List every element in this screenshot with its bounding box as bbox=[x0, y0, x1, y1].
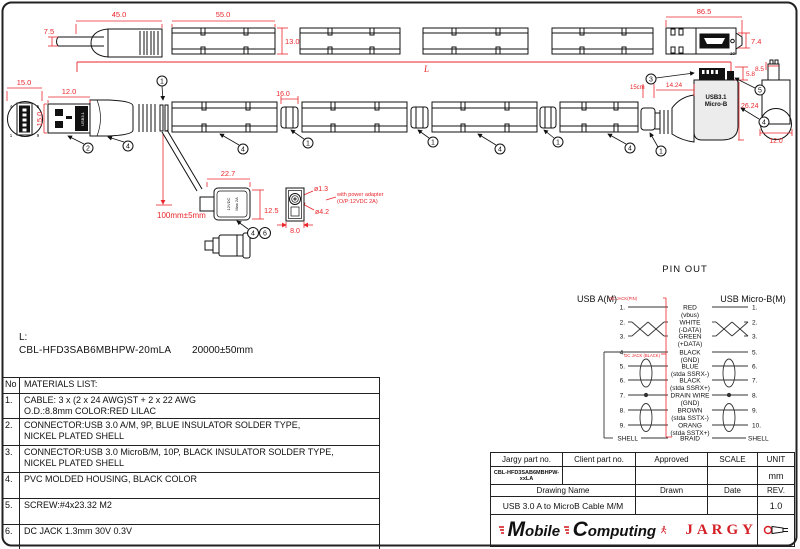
dim-7-4: 7.4 bbox=[751, 37, 761, 46]
pin10-label: 10 bbox=[730, 51, 736, 56]
dc-housing-label1: 12VDC bbox=[226, 197, 231, 210]
pin-r-8: 9. bbox=[752, 408, 758, 415]
callout-4e: 4 bbox=[762, 120, 766, 127]
running-man-icon bbox=[660, 520, 667, 540]
brand-word-mobile: Mobile bbox=[508, 518, 561, 542]
material-no-2: 2. bbox=[3, 419, 20, 445]
dim-26-24: 26.24 bbox=[741, 103, 759, 110]
dim-1-3: ø1.3 bbox=[314, 186, 328, 193]
title-block-logo-row: Mobile Computing JARGY bbox=[491, 515, 794, 545]
dim-15-front: 15.0 bbox=[17, 78, 32, 87]
callout-4c: 4 bbox=[498, 147, 502, 154]
material-desc-2a: CONNECTOR:USB 3.0 A/M, 9P, BLUE INSULATO… bbox=[24, 420, 379, 431]
wire-4: BLACK bbox=[679, 350, 701, 357]
connector-icon bbox=[763, 523, 789, 537]
jargy-part-label: Jargy part no. bbox=[491, 453, 563, 466]
dim-12-right: 12.0 bbox=[769, 138, 783, 145]
client-part-value bbox=[563, 467, 636, 484]
power-note-1: with power adapter bbox=[336, 192, 384, 198]
callout-4a: 4 bbox=[126, 144, 130, 151]
material-desc-1a: CABLE: 3 x (2 x 24 AWG)ST + 2 x 22 AWG bbox=[24, 395, 379, 406]
material-row-6: 6. DC JACK 1.3mm 30V 0.3V bbox=[3, 524, 379, 549]
dim-45: 45.0 bbox=[112, 10, 127, 19]
callout-1b: 1 bbox=[306, 141, 310, 148]
cable-part-number: CBL-HFD3SAB6MBHPW-20mLA bbox=[19, 345, 171, 356]
callout-3: 3 bbox=[649, 77, 653, 84]
wire-3-sub: (+DATA) bbox=[678, 341, 703, 348]
wire-1-sub: (vbus) bbox=[681, 312, 699, 319]
dc-jack-black-label: DC JACK (BLACK) bbox=[624, 353, 660, 358]
drawn-value bbox=[636, 497, 708, 514]
power-note-2: (O/P:12VDC 2A) bbox=[337, 199, 378, 205]
title-block-header-row: Jargy part no. Client part no. Approved … bbox=[491, 453, 794, 467]
callout-1c: 1 bbox=[431, 140, 435, 147]
materials-header-row: No MATERIALS LIST: bbox=[3, 378, 379, 393]
speed-lines-icon bbox=[499, 523, 504, 537]
callout-4f: 4 bbox=[251, 231, 255, 238]
material-desc-4: PVC MOLDED HOUSING, BLACK COLOR bbox=[20, 473, 379, 498]
approved-value bbox=[636, 467, 708, 484]
dim-14-24: 14.24 bbox=[666, 82, 683, 89]
pin-r-5: 6. bbox=[752, 364, 758, 371]
dim-22-7: 22.7 bbox=[221, 169, 236, 178]
materials-list-table: No MATERIALS LIST: 1. CABLE: 3 x (2 x 24… bbox=[3, 377, 380, 549]
pin-r-9: 10. bbox=[752, 423, 761, 430]
material-row-1: 1. CABLE: 3 x (2 x 24 AWG)ST + 2 x 22 AW… bbox=[3, 393, 379, 418]
pin-l-8: 8. bbox=[620, 408, 626, 415]
connector-logo-cell bbox=[758, 515, 794, 545]
pin-l-6: 6. bbox=[620, 378, 626, 385]
wire-7-sub: (GND) bbox=[681, 400, 700, 407]
dim-100mm: 100mm±5mm bbox=[157, 211, 206, 220]
length-note-prefix: L: bbox=[19, 331, 253, 344]
pinout-title: PIN OUT bbox=[662, 264, 708, 275]
material-row-2: 2. CONNECTOR:USB 3.0 A/M, 9P, BLUE INSUL… bbox=[3, 418, 379, 445]
material-row-3: 3. CONNECTOR:USB 3.0 MicroB/M, 10P, BLAC… bbox=[3, 445, 379, 472]
dim-8-5: 8.5 bbox=[755, 66, 764, 73]
brand-word-computing: Computing bbox=[573, 518, 657, 542]
pin-l-9: 9. bbox=[620, 423, 626, 430]
dim-4-2: ø4.2 bbox=[315, 209, 329, 216]
material-desc-5: SCREW:#4x23.32 M2 bbox=[20, 499, 379, 524]
callout-5: 5 bbox=[758, 88, 762, 95]
drawing-name-label: Drawing Name bbox=[491, 485, 636, 496]
title-block-value-row2: USB 3.0 A to MicroB Cable M/M 1.0 bbox=[491, 497, 794, 515]
dim-L: L bbox=[423, 64, 429, 74]
wire-1: RED bbox=[683, 305, 697, 312]
callout-4d: 4 bbox=[628, 146, 632, 153]
drawn-label: Drawn bbox=[636, 485, 708, 496]
wire-5: BLUE bbox=[682, 364, 700, 371]
dim-13: 13.0 bbox=[285, 37, 300, 46]
wire-6: BLACK bbox=[679, 378, 701, 385]
materials-no-header: No bbox=[3, 378, 20, 393]
wire-6-sub: (stda SSRX+) bbox=[670, 385, 710, 392]
pin-r-3: 3. bbox=[752, 334, 758, 341]
pin-r-4: 5. bbox=[752, 350, 758, 357]
jargy-part-value: CBL-HFD3SAB6MBHPW-xxLA bbox=[491, 467, 563, 484]
pin-l-3: 3. bbox=[620, 334, 626, 341]
material-no-4: 4. bbox=[3, 473, 20, 498]
dim-12-side: 12.0 bbox=[62, 87, 77, 96]
dim-15cm: 15cm bbox=[630, 85, 645, 91]
title-block-label-row2: Drawing Name Drawn Date REV. bbox=[491, 485, 794, 497]
pin-r-shell: SHELL bbox=[748, 436, 769, 443]
scale-value bbox=[708, 467, 758, 484]
jargy-logo: JARGY bbox=[685, 522, 757, 539]
title-block-value-row: CBL-HFD3SAB6MBHPW-xxLA mm bbox=[491, 467, 794, 485]
microb-body-label2: Micro-B bbox=[705, 102, 728, 108]
material-desc-2b: NICKEL PLATED SHELL bbox=[24, 431, 379, 442]
pin-l-4: 4. bbox=[620, 350, 626, 357]
usb31-shell-label: USB3.1 bbox=[80, 111, 85, 126]
pin-l-5: 5. bbox=[620, 364, 626, 371]
dim-55: 55.0 bbox=[216, 10, 231, 19]
date-value bbox=[708, 497, 758, 514]
callout-6: 6 bbox=[263, 231, 267, 238]
wire-8: BROWN bbox=[678, 408, 703, 415]
materials-list-header: MATERIALS LIST: bbox=[20, 378, 379, 393]
wire-9: ORANG bbox=[678, 423, 702, 430]
dim-15-side: 15.0 bbox=[35, 112, 44, 127]
date-label: Date bbox=[708, 485, 758, 496]
dim-8: 8.0 bbox=[290, 228, 300, 235]
dc-housing-label2: Max 2A bbox=[234, 197, 239, 211]
drawing-name-value: USB 3.0 A to MicroB Cable M/M bbox=[491, 497, 636, 514]
callout-1e: 1 bbox=[659, 149, 663, 156]
brand-logos: Mobile Computing JARGY bbox=[491, 515, 758, 545]
wire-3: GREEN bbox=[678, 334, 701, 341]
rev-label: REV. bbox=[758, 485, 794, 496]
material-row-5: 5. SCREW:#4x23.32 M2 bbox=[3, 498, 379, 524]
microb-body-label1: USB3.1 bbox=[705, 95, 727, 101]
material-desc-1b: O.D.:8.8mm COLOR:RED LILAC bbox=[24, 406, 379, 417]
unit-label: UNIT bbox=[758, 453, 794, 466]
dim-7-5: 7.5 bbox=[44, 27, 54, 36]
pin-l-7: 7. bbox=[620, 393, 626, 400]
cable-length-tolerance: 20000±50mm bbox=[192, 345, 253, 356]
pinout-right-header: USB Micro-B(M) bbox=[720, 294, 786, 304]
callout-1d: 1 bbox=[556, 140, 560, 147]
material-desc-6: DC JACK 1.3mm 30V 0.3V bbox=[20, 525, 379, 549]
material-no-6: 6. bbox=[3, 525, 20, 549]
pin-r-7: 8. bbox=[752, 393, 758, 400]
pin-r-1: 1. bbox=[752, 305, 758, 312]
unit-value: mm bbox=[758, 467, 794, 484]
dc-jack-pin-label: DC JACK(PIN) bbox=[609, 296, 637, 301]
callout-4b: 4 bbox=[241, 147, 245, 154]
approved-label: Approved bbox=[636, 453, 708, 466]
callout-2: 2 bbox=[86, 146, 90, 153]
material-no-1: 1. bbox=[3, 394, 20, 418]
pin-l-shell: SHELL bbox=[617, 436, 638, 443]
scale-label: SCALE bbox=[708, 453, 758, 466]
callout-1: 1 bbox=[160, 79, 164, 86]
rev-value: 1.0 bbox=[758, 497, 794, 514]
title-block: Jargy part no. Client part no. Approved … bbox=[490, 452, 795, 547]
dim-12-5: 12.5 bbox=[264, 206, 279, 215]
pin-r-2: 2. bbox=[752, 320, 758, 327]
dim-86-5: 86.5 bbox=[697, 7, 712, 16]
pin-l-1: 1. bbox=[620, 305, 626, 312]
pin-r-6: 7. bbox=[752, 378, 758, 385]
material-desc-3a: CONNECTOR:USB 3.0 MicroB/M, 10P, BLACK I… bbox=[24, 447, 379, 458]
material-row-4: 4. PVC MOLDED HOUSING, BLACK COLOR bbox=[3, 472, 379, 498]
wire-braid: BRAID bbox=[680, 436, 700, 443]
client-part-label: Client part no. bbox=[563, 453, 636, 466]
drawing-sheet: 10 45.0 7.5 55.0 13.0 86.5 7.4 L 4 5 1 9 bbox=[0, 0, 800, 549]
material-no-3: 3. bbox=[3, 446, 20, 472]
speed-lines-icon bbox=[564, 523, 569, 537]
wire-8-sub: (stda SSTX-) bbox=[671, 415, 709, 422]
material-no-5: 5. bbox=[3, 499, 20, 524]
wire-2: WHITE bbox=[680, 320, 702, 327]
pin-l-2: 2. bbox=[620, 320, 626, 327]
wire-7: DRAIN WIRE bbox=[671, 393, 711, 400]
material-desc-3b: NICKEL PLATED SHELL bbox=[24, 458, 379, 469]
length-note: L: CBL-HFD3SAB6MBHPW-20mLA 20000±50mm bbox=[19, 331, 253, 357]
dim-16: 16.0 bbox=[276, 91, 290, 98]
